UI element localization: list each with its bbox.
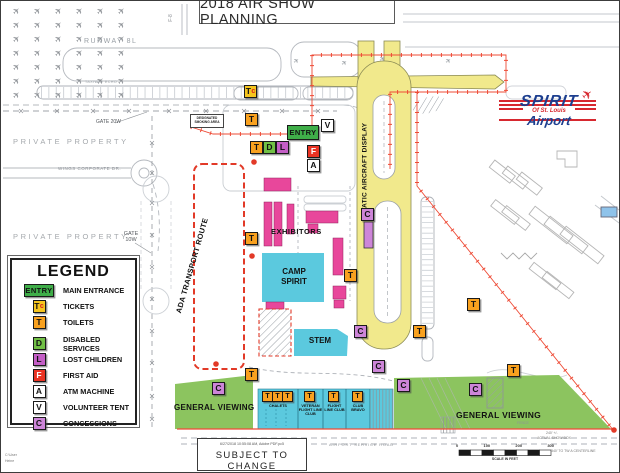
first-aid-icon: F xyxy=(33,369,46,382)
club-section-label: VETERAN FLIGHT LINE CLUB xyxy=(298,404,323,417)
map-icon-concessions: C xyxy=(212,382,225,395)
logo-subtitle: Of St. Louis xyxy=(523,108,575,114)
show-box-note-1: 240' +/- xyxy=(546,431,558,435)
legend-item-first-aid: FFIRST AID xyxy=(18,368,135,383)
club-section-label: CHALETS xyxy=(258,404,298,408)
map-icon-atm: A xyxy=(307,159,320,172)
scale-caption: SCALE IN FEET xyxy=(459,457,551,461)
legend-item-volunteer: VVOLUNTEER TENT xyxy=(18,400,135,415)
club-section-label: FLIGHT LINE CLUB xyxy=(323,404,346,412)
legend-item-toilets: TTOILETS xyxy=(18,315,135,330)
map-icon-toilets: T xyxy=(344,269,357,282)
show-box-note-2: ACTUAL SHOW BOX xyxy=(537,436,571,440)
centerline-note: 340' TO TW A CENTERLINE xyxy=(551,449,596,453)
taxiway-f8-label: F-8 xyxy=(168,14,174,22)
map-icon-toilets: T xyxy=(304,391,315,402)
spirit-airport-logo: SPIRIT ✈ Of St. Louis Airport xyxy=(499,93,599,141)
general-viewing-label-right: GENERAL VIEWING xyxy=(441,410,556,420)
concessions-icon: C xyxy=(33,417,46,430)
legend-item-label: LOST CHILDREN xyxy=(63,355,122,364)
map-icon-toilets: T xyxy=(467,298,480,311)
legend-item-lost: LLOST CHILDREN xyxy=(18,352,135,367)
map-icon-toilets: T xyxy=(328,391,339,402)
map-icon-lost: L xyxy=(276,141,289,154)
legend-item-label: TOILETS xyxy=(63,318,94,327)
legend-item-label: TICKETS xyxy=(63,302,94,311)
map-icon-concessions: C xyxy=(469,383,482,396)
scale-tick: 200 xyxy=(515,443,522,448)
file-path-line1: C:\User xyxy=(5,453,17,457)
exhibitors-label: EXHIBITORS xyxy=(271,227,322,236)
logo-word: Airport xyxy=(498,113,600,128)
static-display-label: STATIC AIRCRAFT DISPLAY xyxy=(362,95,369,245)
scale-tick: 100 xyxy=(483,443,490,448)
scale-tick: 0 xyxy=(456,443,458,448)
stem-label: STEM xyxy=(294,336,346,345)
atm-icon: A xyxy=(33,385,46,398)
map-icon-concessions: C xyxy=(361,208,374,221)
legend-item-atm: AATM MACHINE xyxy=(18,384,135,399)
wings-corporate-dr-label: WINGS CORPORATE DR. xyxy=(58,166,121,171)
taxiway-echo-label: TAXIWAY ECHO xyxy=(85,80,117,84)
page-title: 2018 AIR SHOW PLANNING xyxy=(199,1,395,24)
map-icon-toilets: T xyxy=(245,368,258,381)
map-icon-volunteer: V xyxy=(321,119,334,132)
private-property-label-2: PRIVATE PROPERTY xyxy=(13,232,129,241)
tickets-icon: Tc xyxy=(33,300,46,313)
service-road-label: AIRPORT SERVICE ROAD xyxy=(329,442,394,447)
file-path-line2: Heine xyxy=(5,459,14,463)
lost-icon: L xyxy=(33,353,46,366)
map-icon-toilets: T xyxy=(413,325,426,338)
map-icon-toilets: T xyxy=(245,113,258,126)
map-icon-toilets: T xyxy=(282,391,293,402)
map-icon-first-aid: F xyxy=(307,145,320,158)
legend-item-concessions: CCONCESSIONS xyxy=(18,416,135,431)
volunteer-icon: V xyxy=(33,401,46,414)
map-icon-toilets: T xyxy=(352,391,363,402)
legend-item-disabled: DDISABLED SERVICES xyxy=(18,336,135,351)
runway-label: RUNWAY 8L xyxy=(84,38,137,45)
private-property-label-1: PRIVATE PROPERTY xyxy=(13,137,129,146)
club-section-label: CLUB BRAVO xyxy=(346,404,370,412)
airshow-site-plan: 2018 AIR SHOW PLANNING RUNWAY 8L TAXIWAY… xyxy=(0,0,620,473)
scale-bar-ticks: 0100200300 xyxy=(456,443,554,448)
legend-item-entry: ENTRYMAIN ENTRANCE xyxy=(18,283,135,298)
map-icon-toilets: T xyxy=(245,232,258,245)
map-icon-toilets: T xyxy=(507,364,520,377)
map-icon-toilets: T xyxy=(250,141,263,154)
subject-to-change-label: SUBJECT TO CHANGE xyxy=(198,450,306,472)
general-viewing-label-left: GENERAL VIEWING xyxy=(174,403,254,412)
entry-icon: ENTRY xyxy=(24,284,54,297)
legend: LEGEND ENTRYMAIN ENTRANCETcTICKETSTTOILE… xyxy=(10,258,137,425)
gate-20w-label: GATE 20W xyxy=(96,119,121,125)
legend-item-tickets: TcTICKETS xyxy=(18,299,135,314)
fence-label: FENCE xyxy=(517,421,529,425)
map-icon-concessions: C xyxy=(397,379,410,392)
map-icon-disabled: D xyxy=(263,141,276,154)
plot-timestamp: 6/27/2018 10:55:08 AM, Adobe PDF.pc5 xyxy=(198,442,306,446)
subject-to-change-box: 6/27/2018 10:55:08 AM, Adobe PDF.pc5 SUB… xyxy=(197,438,307,471)
legend-title: LEGEND xyxy=(12,263,135,281)
legend-item-label: CONCESSIONS xyxy=(63,419,117,428)
legend-items: ENTRYMAIN ENTRANCETcTICKETSTTOILETSDDISA… xyxy=(12,283,135,431)
main-entrance-marker: ENTRY xyxy=(287,125,319,140)
hangar-buildings xyxy=(489,151,617,299)
legend-item-label: VOLUNTEER TENT xyxy=(63,403,129,412)
gate-10w-label: GATE 10W xyxy=(122,231,140,243)
camp-spirit-label: CAMP SPIRIT xyxy=(273,267,315,286)
legend-item-label: ATM MACHINE xyxy=(63,387,114,396)
map-icon-tickets: Tc xyxy=(244,85,257,98)
map-icon-concessions: C xyxy=(354,325,367,338)
scale-tick: 300 xyxy=(547,443,554,448)
disabled-icon: D xyxy=(33,337,46,350)
legend-item-label: MAIN ENTRANCE xyxy=(63,286,124,295)
toilets-icon: T xyxy=(33,316,46,329)
map-icon-concessions: C xyxy=(372,360,385,373)
smoking-area-label: DESIGNATED SMOKING AREA xyxy=(190,114,224,128)
legend-item-label: DISABLED SERVICES xyxy=(63,335,135,353)
legend-item-label: FIRST AID xyxy=(63,371,98,380)
